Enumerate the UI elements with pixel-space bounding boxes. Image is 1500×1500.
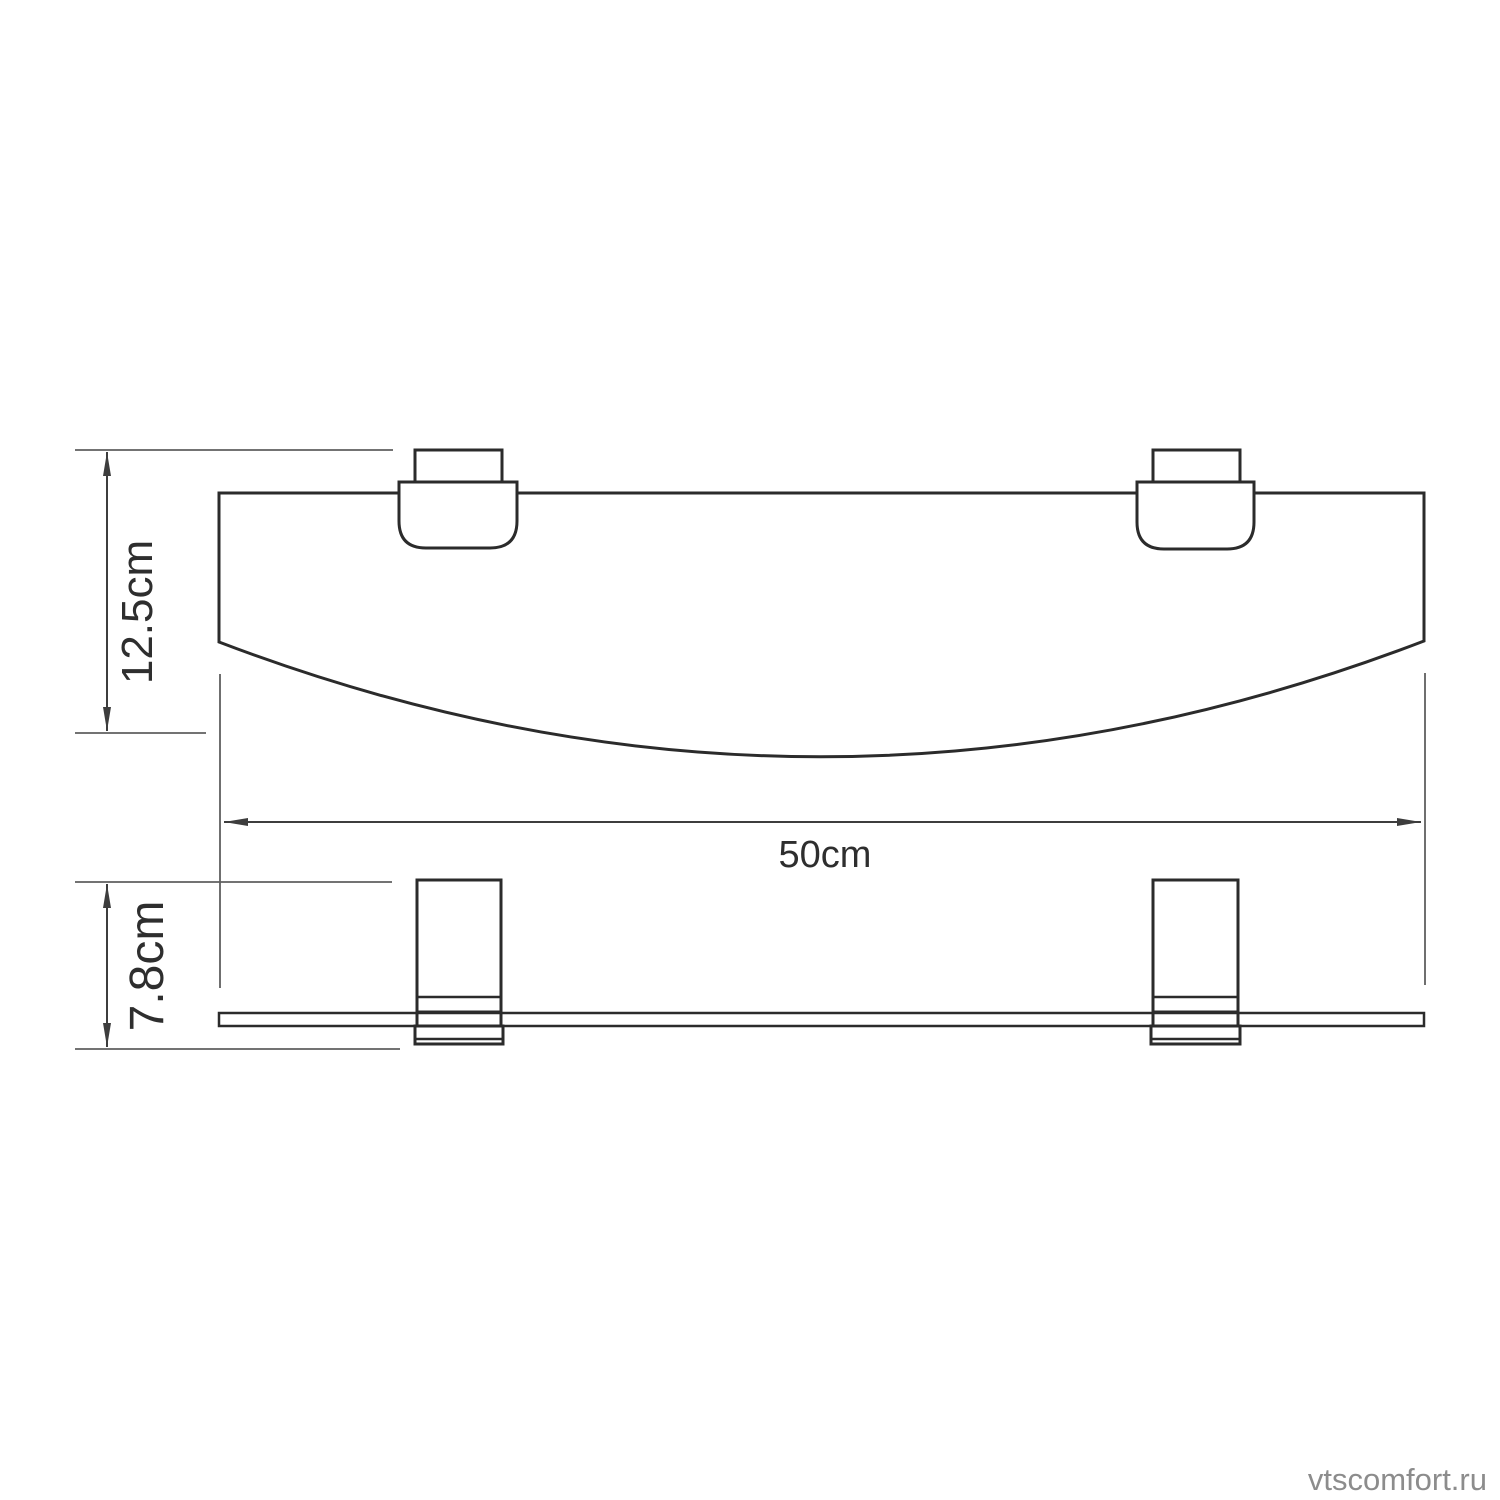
left-post-body (417, 880, 501, 1012)
right-bracket-wall-block (1153, 450, 1240, 482)
left-post-bottom-clip (415, 1026, 503, 1044)
right-post-body (1153, 880, 1238, 1012)
watermark-text: vtscomfort.ru (1308, 1462, 1487, 1497)
depth-dimension-label: 12.5cm (113, 540, 162, 684)
left-bracket-wall-block (415, 450, 502, 482)
right-bracket-clamp (1137, 482, 1254, 549)
glass-shelf-edge (219, 1013, 1424, 1026)
shelf-dimension-drawing: 12.5cm 50cm (0, 0, 1500, 1500)
width-dimension-label: 50cm (779, 834, 872, 876)
height-dimension-label: 7.8cm (121, 901, 174, 1032)
front-view (219, 880, 1424, 1044)
top-view (219, 450, 1424, 757)
left-bracket-clamp (399, 482, 517, 548)
drawing-canvas: 12.5cm 50cm (0, 0, 1500, 1500)
right-post-bottom-clip (1151, 1026, 1240, 1044)
